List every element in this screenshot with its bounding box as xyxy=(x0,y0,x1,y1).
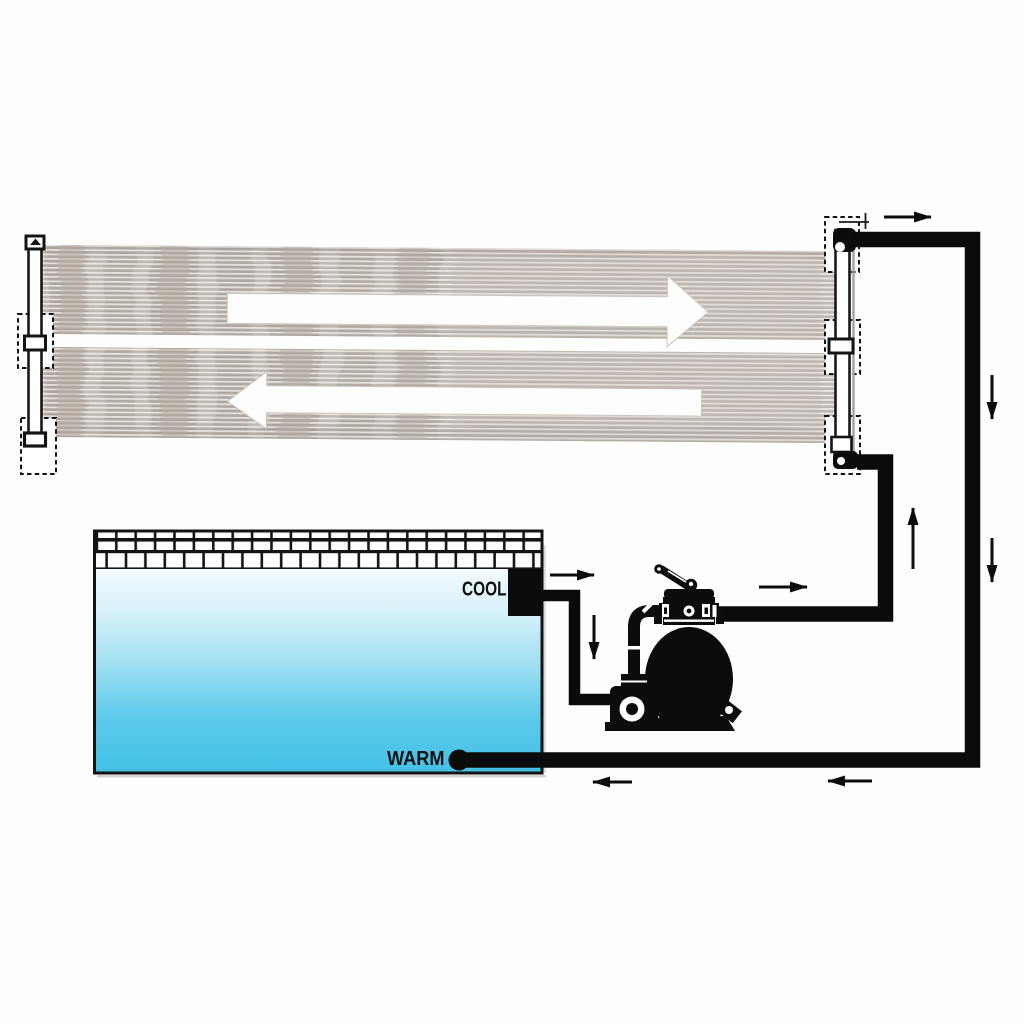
svg-text:WARM: WARM xyxy=(387,747,445,770)
svg-text:COOL: COOL xyxy=(462,578,507,601)
